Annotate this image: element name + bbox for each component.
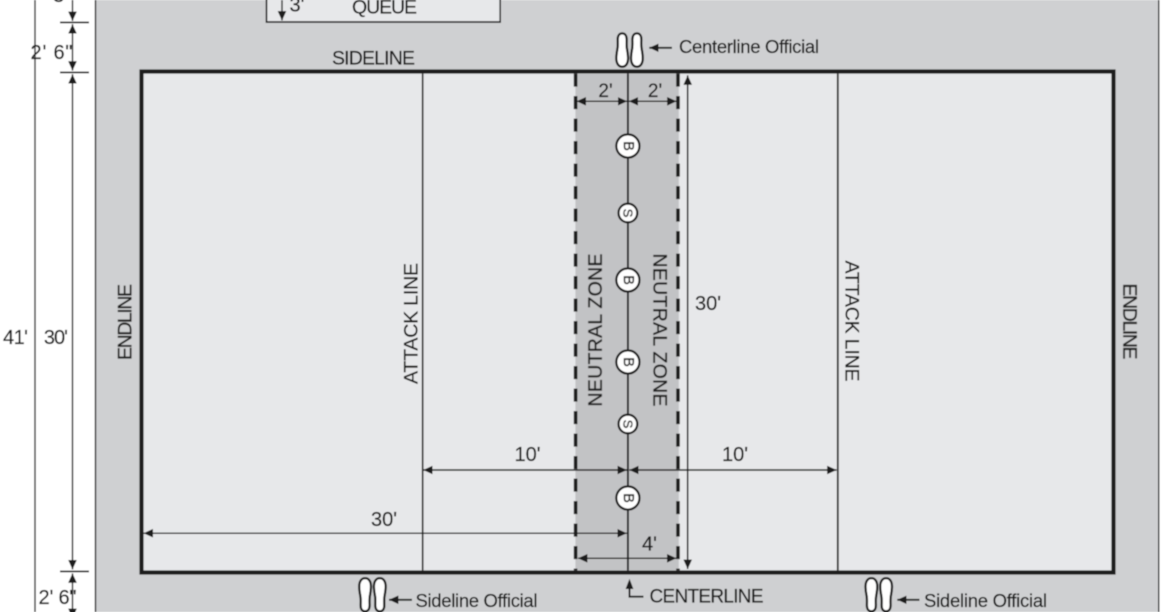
svg-text:4': 4': [642, 534, 657, 556]
svg-text:Sideline Official: Sideline Official: [416, 590, 538, 611]
svg-text:CENTERLINE: CENTERLINE: [650, 586, 764, 607]
svg-text:NEUTRAL ZONE: NEUTRAL ZONE: [585, 254, 607, 407]
svg-text:SIDELINE: SIDELINE: [332, 48, 415, 70]
svg-text:ATTACK LINE: ATTACK LINE: [841, 261, 863, 382]
svg-text:2': 2': [598, 81, 612, 102]
svg-text:B: B: [620, 357, 636, 367]
svg-text:ENDLINE: ENDLINE: [1118, 284, 1140, 360]
svg-text:10': 10': [722, 444, 748, 466]
svg-text:41': 41': [3, 327, 28, 349]
svg-text:QUEUE: QUEUE: [352, 0, 417, 18]
svg-text:2' 6": 2' 6": [39, 587, 77, 609]
svg-text:2': 2': [648, 81, 662, 102]
svg-text:10': 10': [514, 444, 540, 466]
svg-text:2' 6": 2' 6": [31, 42, 73, 64]
svg-text:B: B: [620, 141, 636, 151]
svg-text:ENDLINE: ENDLINE: [114, 284, 136, 360]
svg-text:ATTACK LINE: ATTACK LINE: [401, 263, 423, 384]
svg-text:30': 30': [371, 509, 397, 531]
svg-text:3': 3': [53, 0, 68, 7]
svg-text:S: S: [620, 420, 635, 429]
svg-text:Centerline Official: Centerline Official: [679, 36, 819, 57]
svg-text:B: B: [620, 493, 636, 503]
svg-text:S: S: [620, 209, 635, 218]
svg-text:NEUTRAL ZONE: NEUTRAL ZONE: [648, 254, 670, 407]
svg-text:3': 3': [290, 0, 305, 17]
svg-text:30': 30': [695, 293, 721, 315]
svg-text:B: B: [620, 275, 636, 285]
svg-text:Sideline Official: Sideline Official: [924, 590, 1047, 611]
svg-text:30': 30': [44, 327, 68, 349]
